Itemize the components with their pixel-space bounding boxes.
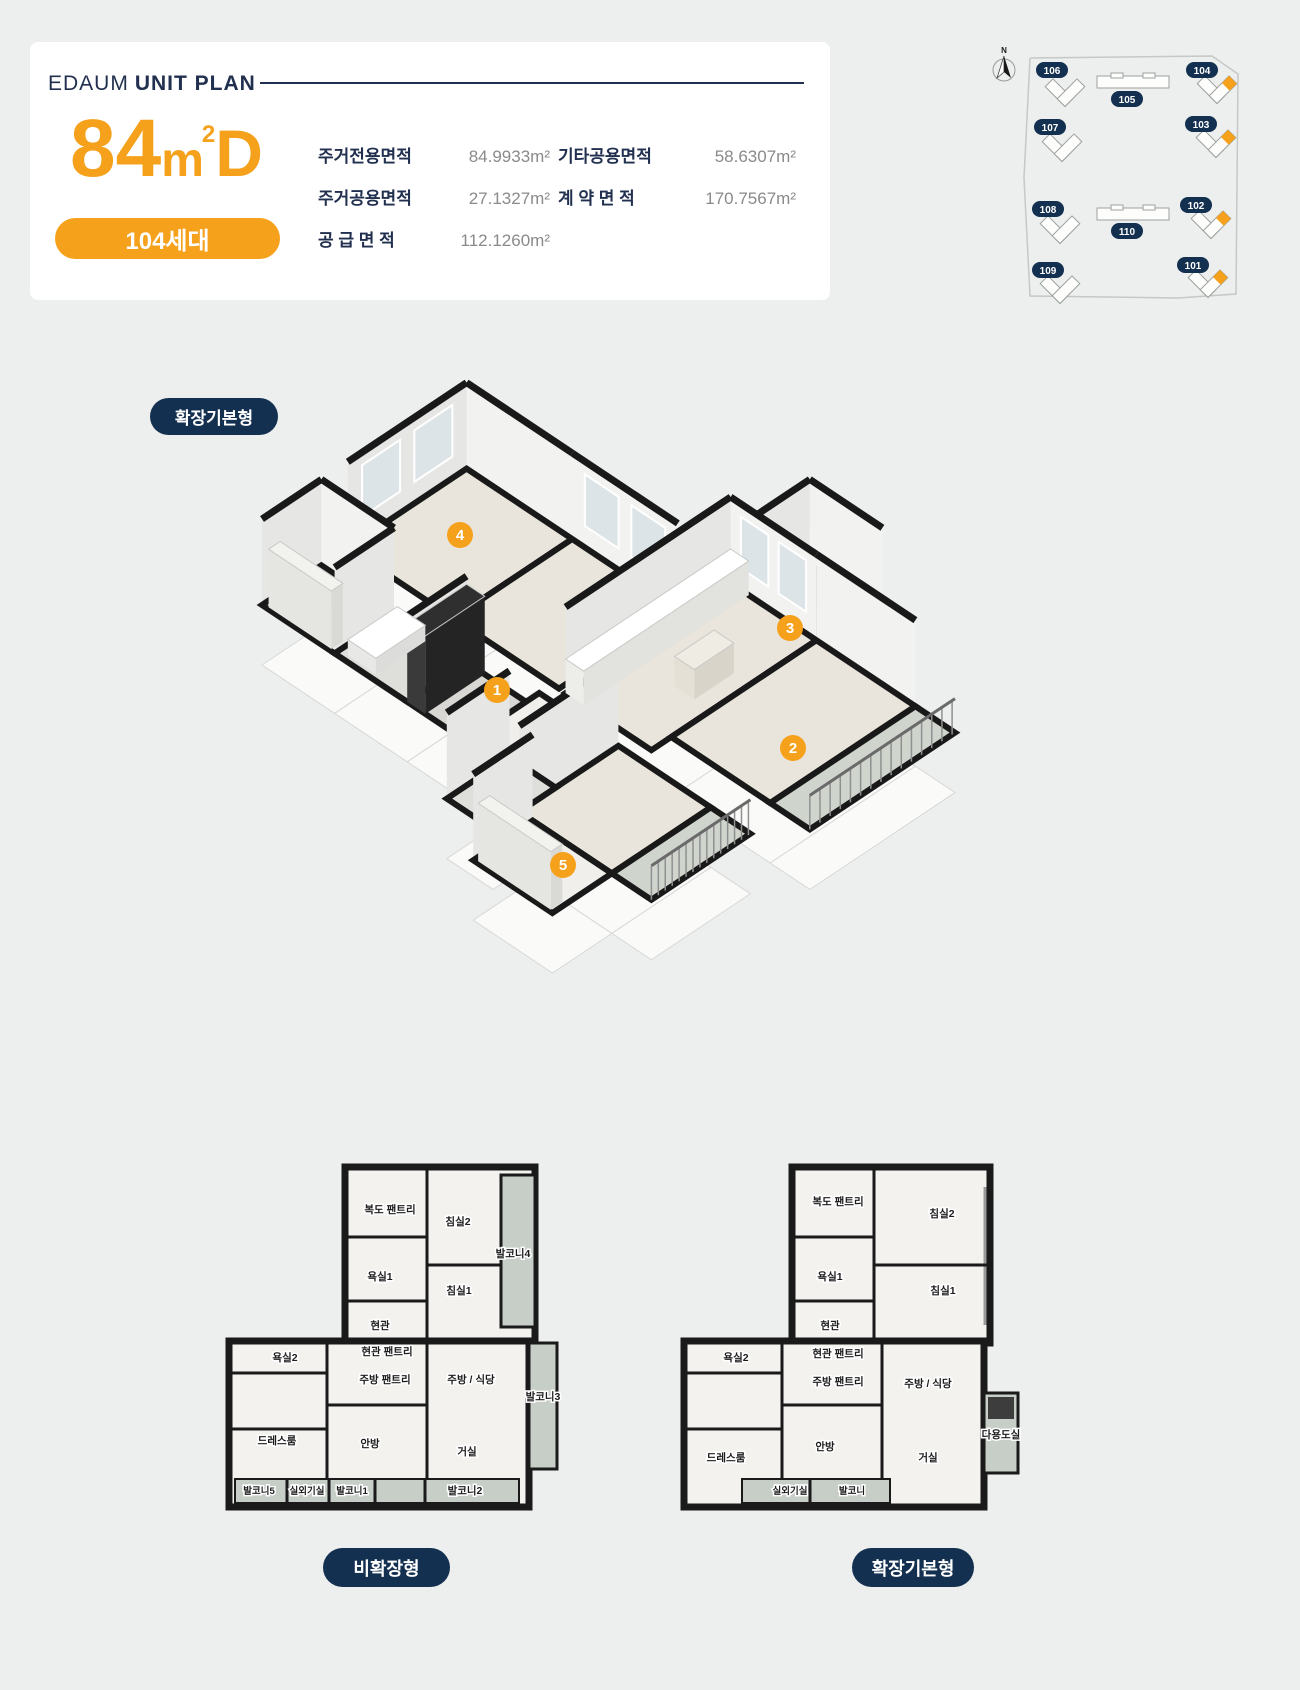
site-map: N 106105104107103108110102109101 <box>930 46 1245 312</box>
room-label: 욕실1 <box>367 1270 392 1283</box>
brand-line: EDAUMUNIT PLAN <box>48 72 256 96</box>
room-label: 드레스룸 <box>707 1451 746 1464</box>
unit-type-letter: D <box>215 116 263 190</box>
room-label: 실외기실 <box>773 1485 808 1497</box>
isometric-floorplan: 12345 <box>245 360 965 1060</box>
svg-text:3: 3 <box>786 620 794 637</box>
room-label: 주방 / 식당 <box>904 1377 952 1390</box>
room-label: 발코니 <box>839 1485 865 1497</box>
room-label: 주방 팬트리 <box>359 1373 410 1386</box>
svg-text:5: 5 <box>559 857 567 874</box>
svg-text:106: 106 <box>1044 66 1061 77</box>
svg-text:108: 108 <box>1040 205 1057 216</box>
svg-text:109: 109 <box>1040 266 1057 277</box>
building-105 <box>1097 73 1169 88</box>
room-label: 주방 팬트리 <box>812 1375 863 1388</box>
unit-type-sup: 2 <box>202 121 215 148</box>
room-label: 거실 <box>457 1445 476 1458</box>
svg-text:107: 107 <box>1042 123 1059 134</box>
spec-label: 계 약 면 적 <box>558 184 678 209</box>
svg-text:1: 1 <box>493 682 501 699</box>
spec-value: 84.9933m² <box>438 147 550 167</box>
floorplan-expanded: 복도 팬트리침실2욕실1침실1현관현관 팬트리욕실2주방 팬트리주방 / 식당드… <box>680 1095 1040 1540</box>
room-label: 복도 팬트리 <box>364 1203 415 1216</box>
spec-label: 주거전용면적 <box>318 142 438 167</box>
building-110 <box>1097 205 1169 220</box>
spec-label: 공 급 면 적 <box>318 226 438 251</box>
unit-type-title: 84m2D <box>70 108 263 190</box>
room-label: 안방 <box>815 1440 835 1453</box>
room-label: 현관 <box>370 1319 390 1332</box>
svg-text:105: 105 <box>1119 95 1136 106</box>
room-label: 발코니5 <box>243 1485 275 1497</box>
spec-row: 주거공용면적 27.1327m² <box>318 184 550 209</box>
svg-text:104: 104 <box>1194 66 1211 77</box>
unit-type-number: 84 <box>70 103 161 194</box>
room-label: 현관 팬트리 <box>812 1347 863 1360</box>
svg-text:4: 4 <box>456 527 465 544</box>
room-label: 발코니1 <box>336 1485 368 1497</box>
spec-value: 112.1260m² <box>438 231 550 251</box>
room-label: 욕실2 <box>723 1351 748 1364</box>
room-label: 안방 <box>360 1437 380 1450</box>
spec-row: 기타공용면적 58.6307m² <box>558 142 796 167</box>
svg-text:N: N <box>1001 46 1007 55</box>
page-title: UNIT PLAN <box>135 72 256 95</box>
svg-text:101: 101 <box>1185 261 1202 272</box>
spec-row: 계 약 면 적 170.7567m² <box>558 184 796 209</box>
spec-value: 170.7567m² <box>678 189 796 209</box>
units-count-badge: 104세대 <box>55 218 280 259</box>
room-label: 복도 팬트리 <box>812 1195 863 1208</box>
page: EDAUMUNIT PLAN 84m2D 104세대 주거전용면적 84.993… <box>0 0 1300 1690</box>
room-label: 드레스룸 <box>258 1434 297 1447</box>
spec-label: 기타공용면적 <box>558 142 678 167</box>
room-label: 침실2 <box>445 1215 470 1228</box>
room-label: 다용도실 <box>982 1428 1021 1441</box>
room-label: 발코니2 <box>448 1484 483 1497</box>
room-label: 침실1 <box>930 1284 955 1297</box>
svg-text:110: 110 <box>1119 227 1136 238</box>
plan-badge-non-expanded: 비확장형 <box>323 1548 450 1587</box>
room-label: 욕실2 <box>272 1351 297 1364</box>
svg-text:102: 102 <box>1188 201 1205 212</box>
room-label: 현관 <box>820 1319 840 1332</box>
spec-label: 주거공용면적 <box>318 184 438 209</box>
spec-row: 공 급 면 적 112.1260m² <box>318 226 550 251</box>
room-label: 발코니4 <box>496 1247 531 1260</box>
room-label: 거실 <box>918 1451 937 1464</box>
iso-plan-type-badge: 확장기본형 <box>150 398 278 435</box>
room-label: 현관 팬트리 <box>361 1345 412 1358</box>
svg-text:103: 103 <box>1193 120 1210 131</box>
room-label: 실외기실 <box>290 1485 325 1497</box>
compass-north-icon: N <box>993 46 1015 81</box>
room-label: 발코니3 <box>526 1390 561 1403</box>
floorplan-non-expanded: 복도 팬트리침실2발코니4욕실1침실1현관현관 팬트리욕실2주방 팬트리주방 /… <box>225 1095 560 1540</box>
unit-type-unit: m <box>161 134 204 187</box>
spec-value: 27.1327m² <box>438 189 550 209</box>
header-divider <box>260 82 804 84</box>
room-label: 주방 / 식당 <box>447 1373 495 1386</box>
svg-text:2: 2 <box>789 740 797 757</box>
room-label: 침실2 <box>929 1207 954 1220</box>
spec-row: 주거전용면적 84.9933m² <box>318 142 550 167</box>
header-card: EDAUMUNIT PLAN 84m2D 104세대 주거전용면적 84.993… <box>30 42 830 300</box>
spec-value: 58.6307m² <box>678 147 796 167</box>
room-label: 침실1 <box>446 1284 471 1297</box>
room-label: 욕실1 <box>817 1270 842 1283</box>
brand-name: EDAUM <box>48 72 129 95</box>
plan-badge-expanded: 확장기본형 <box>852 1548 974 1587</box>
